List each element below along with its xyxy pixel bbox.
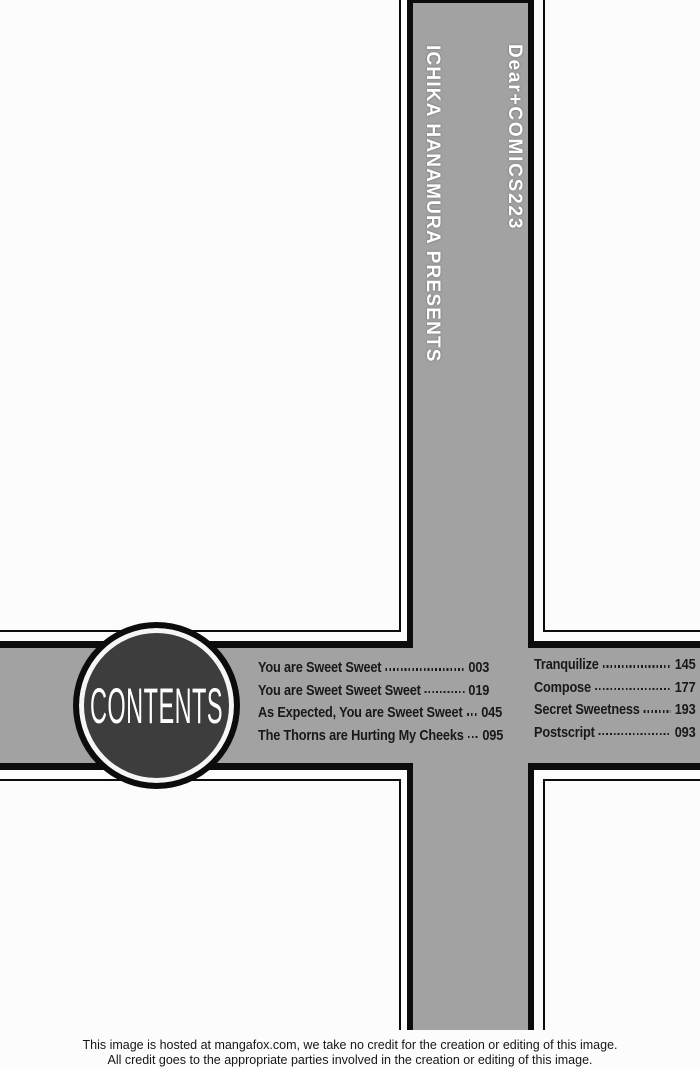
thin-line-horizontal-bottom-left	[0, 779, 401, 781]
toc-entry-title: Postscript	[534, 724, 595, 741]
vertical-band-border-right-bottom	[528, 763, 534, 1030]
toc-entry-title: Secret Sweetness	[534, 701, 640, 718]
horizontal-band-border-bottom-right	[528, 763, 700, 770]
toc-entry-page: 003	[468, 659, 489, 676]
toc-entry: You are Sweet Sweet 003	[258, 660, 489, 675]
toc-entry-title: You are Sweet Sweet Sweet	[258, 682, 421, 699]
thin-line-horizontal-top-left	[0, 630, 401, 632]
toc-entry: Secret Sweetness 193	[534, 702, 696, 717]
toc-entry-title: You are Sweet Sweet	[258, 659, 381, 676]
toc-entry-title: Compose	[534, 679, 591, 696]
toc-entry-title: Tranquilize	[534, 656, 599, 673]
vertical-band-border-right-top	[528, 0, 534, 648]
vertical-band-border-left-top	[407, 0, 413, 648]
toc-entry: Postscript 093	[534, 725, 696, 740]
toc-leader-dots	[425, 691, 464, 694]
toc-entry: Tranquilize 145	[534, 657, 696, 672]
toc-leader-dots	[603, 665, 670, 668]
toc-entry-page: 177	[675, 679, 696, 696]
contents-badge: CONTENTS	[73, 622, 240, 789]
toc-entry: You are Sweet Sweet Sweet 019	[258, 683, 489, 698]
thin-line-vertical-left-top	[399, 0, 401, 632]
toc-entry: The Thorns are Hurting My Cheeks 095	[258, 728, 489, 743]
toc-entry-page: 095	[482, 727, 503, 744]
toc-entry-page: 045	[481, 704, 502, 721]
toc-entry: Compose 177	[534, 680, 696, 695]
toc-entry: As Expected, You are Sweet Sweet 045	[258, 705, 489, 720]
toc-right-column: Tranquilize 145 Compose 177 Secret Sweet…	[534, 657, 696, 747]
toc-entry-title: The Thorns are Hurting My Cheeks	[258, 727, 464, 744]
toc-leader-dots	[644, 710, 671, 713]
toc-entry-page: 019	[468, 682, 489, 699]
vertical-band-border-left-bottom	[407, 763, 413, 1030]
toc-entry-page: 093	[675, 724, 696, 741]
vertical-band-top-cap	[407, 0, 534, 3]
hosting-disclaimer-line1: This image is hosted at mangafox.com, we…	[0, 1038, 700, 1053]
toc-leader-dots	[595, 688, 670, 691]
toc-left-column: You are Sweet Sweet 003 You are Sweet Sw…	[258, 660, 489, 750]
toc-entry-page: 193	[675, 701, 696, 718]
toc-leader-dots	[599, 733, 671, 736]
hosting-disclaimer-line2: All credit goes to the appropriate parti…	[0, 1053, 700, 1068]
thin-line-vertical-right-top	[543, 0, 545, 632]
hosting-disclaimer: This image is hosted at mangafox.com, we…	[0, 1038, 700, 1067]
toc-leader-dots	[468, 736, 478, 739]
horizontal-band-border-top-right	[528, 641, 700, 648]
toc-leader-dots	[467, 713, 477, 716]
thin-line-vertical-right-bottom	[543, 779, 545, 1030]
contents-title: CONTENTS	[90, 677, 223, 735]
toc-leader-dots	[386, 668, 465, 671]
thin-line-vertical-left-bottom	[399, 779, 401, 1030]
thin-line-horizontal-top-right	[543, 630, 700, 632]
spine-presents-text: ICHIKA HANAMURA PRESENTS	[422, 45, 443, 363]
toc-entry-page: 145	[675, 656, 696, 673]
toc-entry-title: As Expected, You are Sweet Sweet	[258, 704, 463, 721]
spine-series-text: Dear+COMICS223	[504, 44, 525, 230]
thin-line-horizontal-bottom-right	[543, 779, 700, 781]
